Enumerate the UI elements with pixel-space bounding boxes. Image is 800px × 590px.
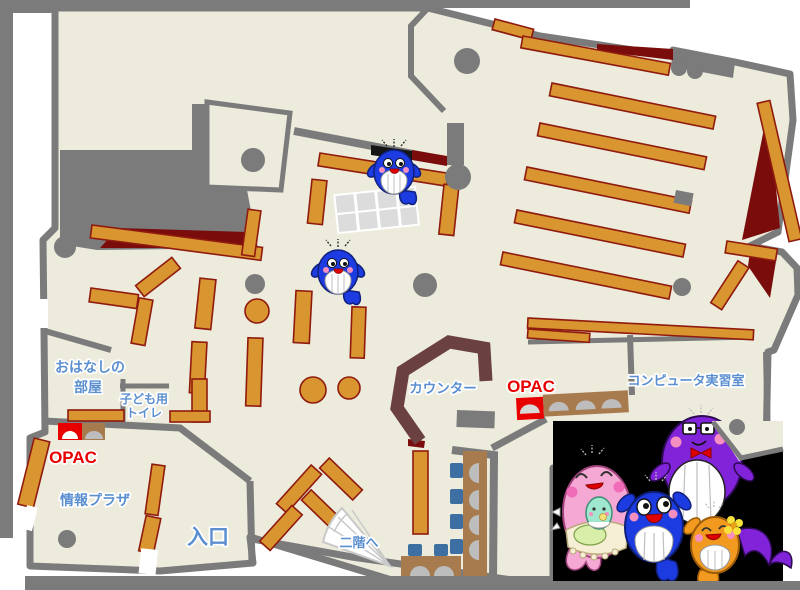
mascot-family-picture (551, 405, 792, 586)
floor-map-svg: おはなしの 部屋 子ども用 トイレ OPAC 情報プラザ 入口 二階へ カウンタ… (0, 0, 800, 590)
library-floor-map: おはなしの 部屋 子ども用 トイレ OPAC 情報プラザ 入口 二階へ カウンタ… (0, 0, 800, 590)
bottom-wall-bar-right (553, 581, 800, 590)
label-computer-room: コンピュータ実習室 (627, 373, 744, 388)
label-storytelling-room-line2: 部屋 (74, 379, 102, 395)
label-storytelling-room-line1: おはなしの (55, 359, 125, 375)
label-to-second-floor: 二階へ (339, 535, 378, 550)
label-kids-toilet-line1: 子ども用 (120, 392, 168, 406)
label-info-plaza: 情報プラザ (60, 492, 130, 508)
label-opac-right: OPAC (507, 377, 555, 396)
label-counter: カウンター (409, 381, 477, 396)
opac-terminal-left (58, 423, 82, 440)
label-entrance: 入口 (187, 526, 229, 549)
label-kids-toilet-line2: トイレ (126, 406, 162, 420)
bottom-wall-bar (25, 576, 553, 590)
label-opac-left: OPAC (49, 448, 97, 467)
